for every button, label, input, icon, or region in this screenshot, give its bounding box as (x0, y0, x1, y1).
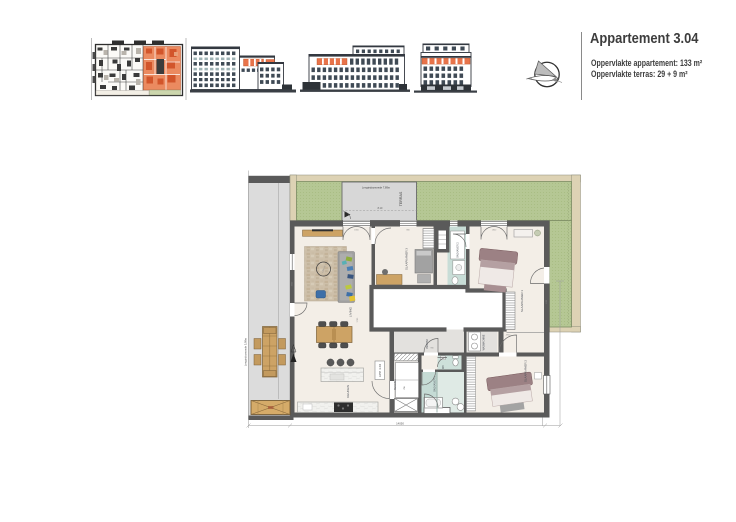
svg-text:8.10: 8.10 (378, 207, 383, 210)
svg-text:KEUKEN: KEUKEN (346, 385, 350, 398)
svg-text:BADKAMER 1: BADKAMER 1 (434, 376, 437, 392)
svg-text:BADKAMER 2: BADKAMER 2 (457, 242, 460, 258)
svg-text:Lengtedoorsnede 7,89m: Lengtedoorsnede 7,89m (362, 186, 390, 190)
svg-text:BERGING: BERGING (394, 379, 397, 390)
svg-text:TERRAS: TERRAS (399, 191, 403, 206)
svg-text:WC: WC (442, 365, 445, 369)
svg-text:Lengtedoorsnede 3,98m: Lengtedoorsnede 3,98m (244, 338, 248, 366)
svg-text:WASMACHINE: WASMACHINE (483, 334, 486, 350)
svg-text:APP. 3.04: APP. 3.04 (378, 364, 382, 377)
svg-text:INKOM: INKOM (425, 339, 429, 349)
svg-text:LIVING: LIVING (349, 306, 353, 317)
svg-text:SLAAPKAMER 1: SLAAPKAMER 1 (520, 290, 524, 312)
svg-text:SLAAPKAMER 2: SLAAPKAMER 2 (524, 360, 528, 382)
svg-text:SLAAPKAMER 3: SLAAPKAMER 3 (405, 248, 409, 270)
svg-text:14050: 14050 (396, 422, 404, 426)
